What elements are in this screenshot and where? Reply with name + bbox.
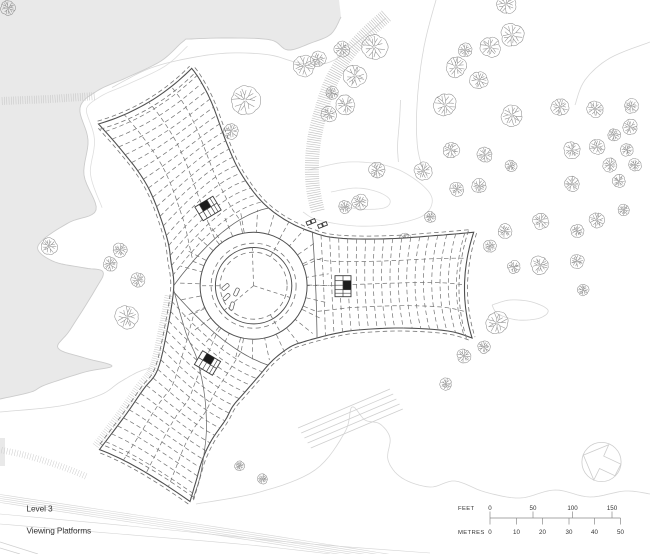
svg-text:30: 30: [566, 529, 573, 536]
svg-text:0: 0: [488, 505, 492, 512]
svg-text:0: 0: [488, 529, 492, 536]
svg-text:40: 40: [591, 529, 598, 536]
svg-text:Viewing Platforms: Viewing Platforms: [27, 526, 92, 536]
svg-text:METRES: METRES: [458, 530, 485, 536]
svg-text:Level 3: Level 3: [27, 504, 54, 514]
svg-text:150: 150: [607, 505, 618, 512]
svg-text:20: 20: [539, 529, 546, 536]
svg-text:100: 100: [567, 505, 578, 512]
svg-text:50: 50: [617, 529, 624, 536]
svg-text:10: 10: [513, 529, 520, 536]
svg-text:50: 50: [530, 505, 537, 512]
svg-text:FEET: FEET: [458, 506, 475, 512]
